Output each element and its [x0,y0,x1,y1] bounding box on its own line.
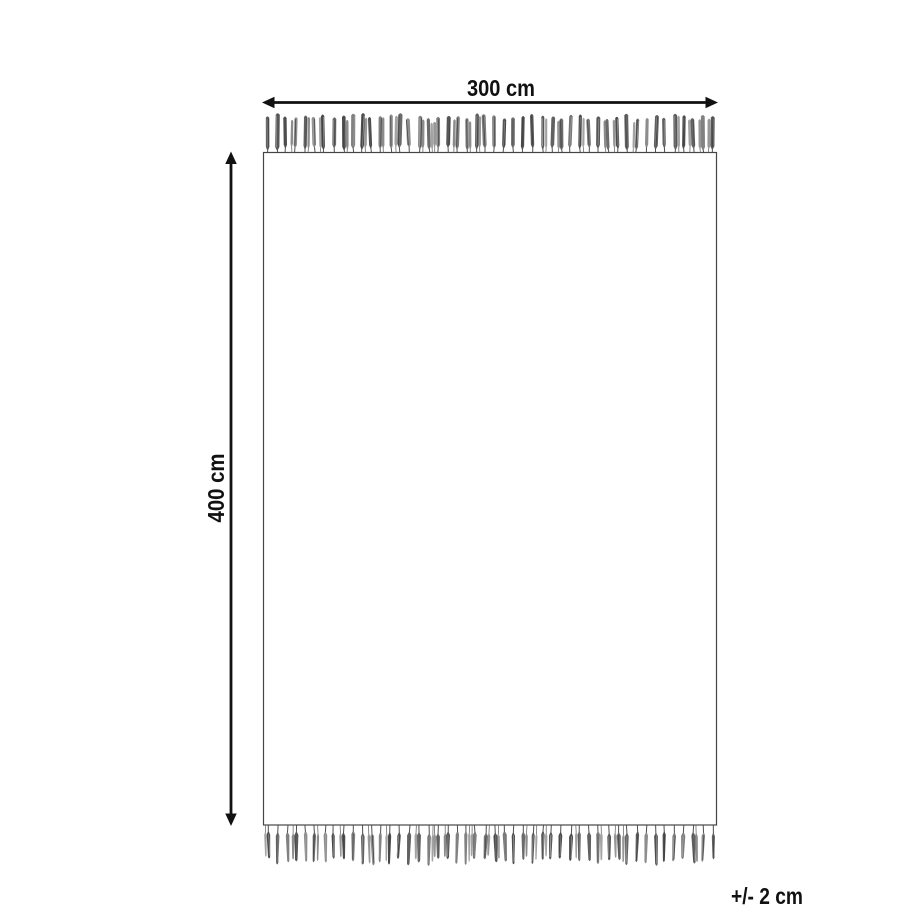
svg-text:400 cm: 400 cm [203,454,229,523]
svg-text:300 cm: 300 cm [467,75,535,101]
svg-text:+/- 2 cm: +/- 2 cm [731,883,803,909]
